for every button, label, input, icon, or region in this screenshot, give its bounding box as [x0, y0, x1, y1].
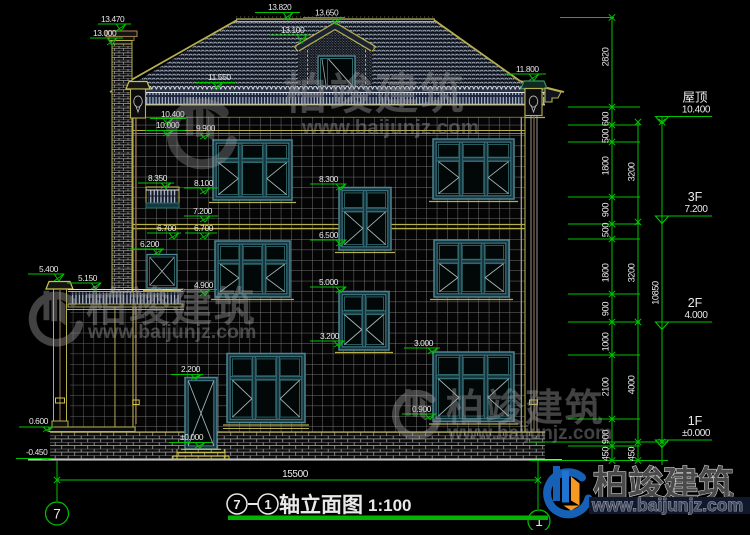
svg-text:900: 900 — [601, 203, 611, 217]
svg-text:4000: 4000 — [627, 375, 637, 394]
svg-text:±0.000: ±0.000 — [180, 432, 204, 442]
svg-text:5.400: 5.400 — [39, 264, 59, 274]
svg-text:6.500: 6.500 — [319, 230, 339, 240]
svg-text:13.470: 13.470 — [101, 14, 125, 24]
svg-text:www.baijunjz.com: www.baijunjz.com — [87, 321, 256, 343]
svg-text:11.800: 11.800 — [516, 64, 539, 74]
svg-text:7: 7 — [53, 507, 61, 522]
svg-text:0.600: 0.600 — [29, 416, 49, 426]
svg-text:3200: 3200 — [627, 263, 637, 282]
svg-text:7.200: 7.200 — [684, 204, 708, 215]
svg-text:3.200: 3.200 — [320, 331, 340, 341]
svg-text:7: 7 — [233, 497, 240, 512]
svg-text:15500: 15500 — [282, 469, 309, 480]
svg-text:8.350: 8.350 — [148, 173, 168, 183]
svg-text:13.000: 13.000 — [93, 28, 117, 38]
svg-text:1F: 1F — [688, 414, 703, 428]
svg-text:1800: 1800 — [601, 156, 611, 175]
svg-text:3200: 3200 — [627, 162, 637, 181]
svg-text:10850: 10850 — [651, 281, 661, 305]
svg-text:10.400: 10.400 — [682, 105, 711, 116]
svg-text:-0.450: -0.450 — [26, 447, 48, 457]
svg-text:13.820: 13.820 — [268, 2, 292, 12]
svg-text:6.200: 6.200 — [140, 239, 160, 249]
svg-text:屋顶: 屋顶 — [682, 91, 708, 105]
svg-text:13.650: 13.650 — [315, 8, 339, 18]
svg-text:4.000: 4.000 — [684, 310, 708, 321]
svg-text:1800: 1800 — [601, 263, 611, 282]
svg-text:www.baijunjz.com: www.baijunjz.com — [591, 495, 743, 515]
svg-text:13.100: 13.100 — [281, 25, 305, 35]
svg-text:轴立面图: 轴立面图 — [279, 493, 363, 517]
svg-text:7.200: 7.200 — [193, 206, 213, 216]
svg-text:www.baijunjz.com: www.baijunjz.com — [447, 423, 612, 444]
svg-text:1: 1 — [264, 497, 271, 512]
svg-text:3F: 3F — [688, 190, 703, 204]
svg-text:500: 500 — [601, 223, 611, 237]
svg-text:6.700: 6.700 — [194, 223, 214, 233]
svg-text:2.200: 2.200 — [181, 364, 201, 374]
svg-text:900: 900 — [601, 302, 611, 316]
svg-text:5.000: 5.000 — [319, 277, 339, 287]
svg-text:±0.000: ±0.000 — [682, 428, 711, 439]
svg-text:450: 450 — [627, 447, 637, 461]
svg-text:8.300: 8.300 — [319, 174, 339, 184]
svg-text:11.550: 11.550 — [208, 72, 231, 82]
svg-text:1:100: 1:100 — [368, 496, 411, 515]
svg-text:450: 450 — [601, 447, 611, 461]
svg-text:柏竣建筑: 柏竣建筑 — [284, 71, 466, 119]
svg-text:6.700: 6.700 — [157, 223, 177, 233]
svg-text:www.baijunjz.com: www.baijunjz.com — [301, 116, 479, 139]
svg-text:500: 500 — [601, 129, 611, 143]
svg-text:600: 600 — [601, 112, 611, 126]
svg-text:2F: 2F — [688, 296, 703, 310]
svg-text:5.150: 5.150 — [78, 273, 98, 283]
svg-text:8.100: 8.100 — [194, 178, 214, 188]
svg-text:1000: 1000 — [601, 332, 611, 351]
svg-text:3.000: 3.000 — [414, 338, 434, 348]
svg-text:2820: 2820 — [601, 47, 611, 66]
